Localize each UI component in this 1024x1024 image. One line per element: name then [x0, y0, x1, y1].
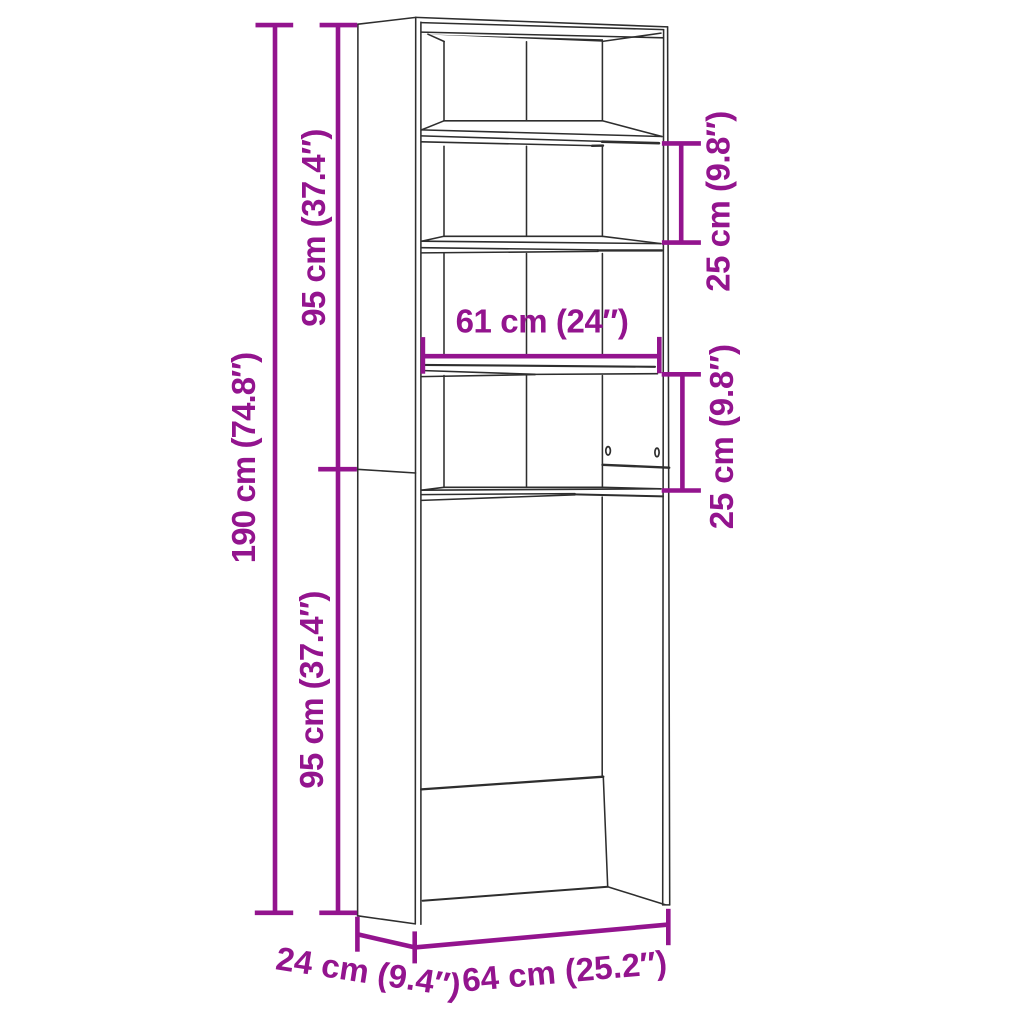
svg-text:24 cm (9.4″): 24 cm (9.4″)	[274, 939, 464, 1004]
svg-text:64 cm (25.2″): 64 cm (25.2″)	[461, 943, 669, 998]
svg-text:95 cm (37.4″): 95 cm (37.4″)	[293, 591, 330, 789]
svg-text:95 cm (37.4″): 95 cm (37.4″)	[295, 129, 332, 327]
svg-text:190 cm (74.8″): 190 cm (74.8″)	[225, 353, 262, 564]
svg-text:61 cm (24″): 61 cm (24″)	[456, 303, 629, 340]
svg-text:25 cm (9.8″): 25 cm (9.8″)	[700, 111, 737, 291]
svg-text:25 cm (9.8″): 25 cm (9.8″)	[703, 344, 740, 529]
